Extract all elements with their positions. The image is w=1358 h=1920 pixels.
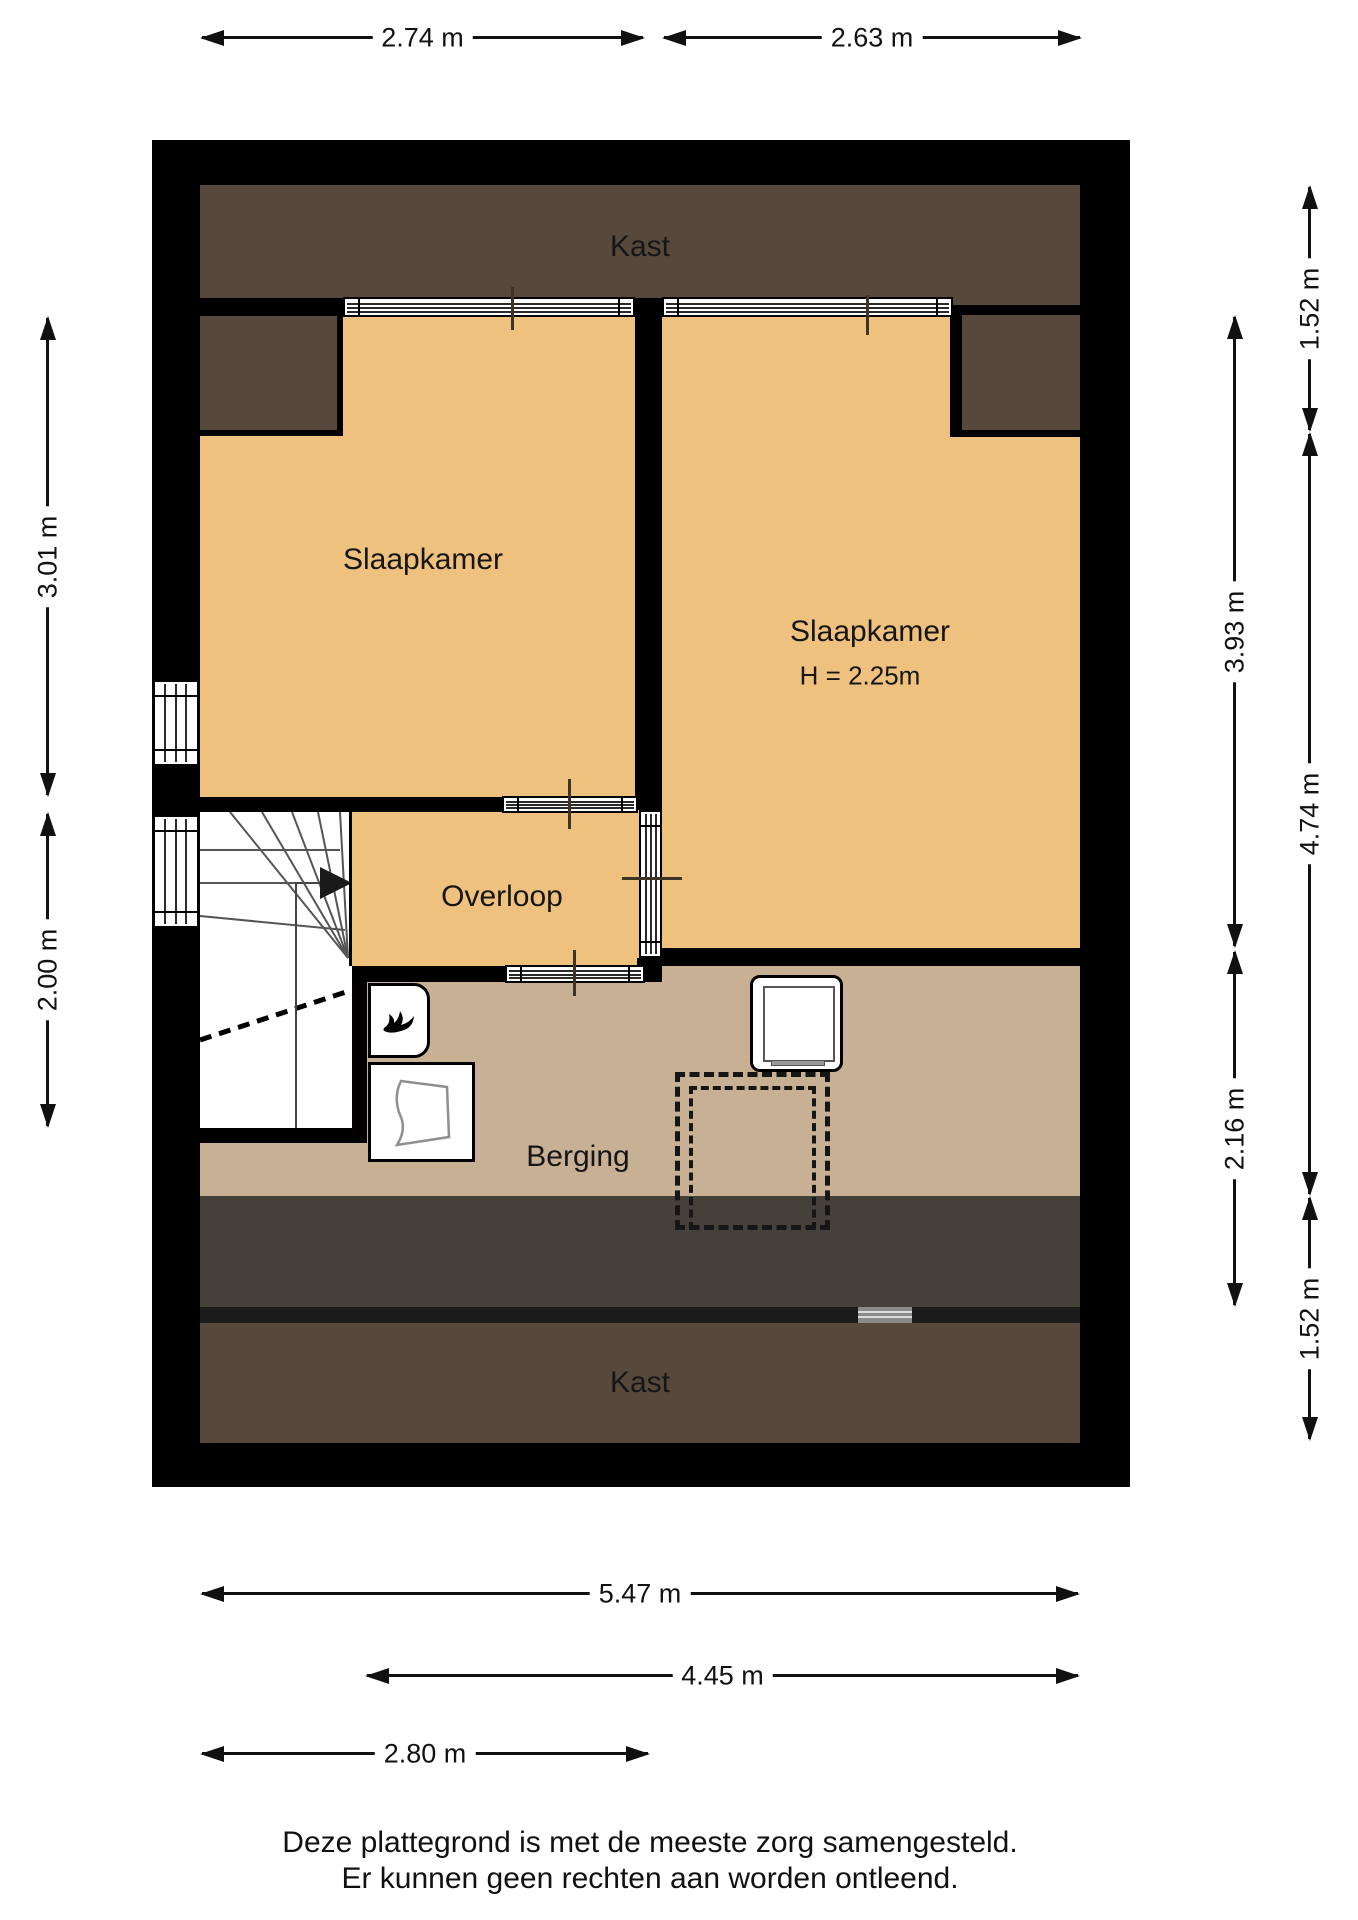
window-tick-right [866,295,869,335]
hatch-dashed-outline-inner [689,1086,816,1230]
label-berging: Berging [526,1140,629,1174]
stairs-drawing [200,812,352,1128]
wall-stairs-bottom [152,1128,367,1143]
wall-top-band-left [200,298,343,316]
label-slaapkamer-right-height: H = 2.25m [800,661,921,692]
window-tick-overloop-top [568,779,571,829]
closet-block-right-border-left [950,313,962,437]
window-tick-left [511,287,514,330]
dim-bottom-1: 5.47 m [200,1574,1080,1614]
stairs-edge-line [349,812,352,966]
dim-left-2: 2.00 m [28,812,68,1128]
dim-top-2: 2.63 m [662,18,1082,58]
washing-machine [750,975,843,1072]
washing-machine-inner [763,986,835,1062]
wall-bedroom-left-bottom [200,797,502,812]
dim-bottom-2: 4.45 m [365,1656,1080,1696]
label-kast-bottom: Kast [610,1366,670,1400]
closet-block-left-border-right [337,315,343,435]
dim-right-outer-2: 4.74 m [1290,432,1330,1196]
window-bedroom-right-top [662,297,953,317]
window-bedroom-left-top [343,297,635,317]
closet-block-right [962,313,1080,430]
dim-top-1: 2.74 m [200,18,645,58]
window-tick-berging [573,950,576,996]
window-left-wall-lower [153,815,199,928]
floor-plan-page: Kast Slaapkamer Slaapkamer H = 2.25m Ove… [0,0,1358,1920]
door-tick [622,877,682,880]
closet-block-left [200,315,338,430]
dim-right-outer-1: 1.52 m [1290,185,1330,432]
closet-block-left-border-bottom [200,430,343,436]
dim-left-1: 3.01 m [28,316,68,797]
wall-stairs-right [352,966,367,1143]
wall-top-band-right [953,305,1082,315]
vent-bottom-wall [858,1307,912,1323]
stairs-arrow-icon [320,867,352,899]
ventilation-unit [368,1062,475,1162]
window-left-wall-upper [153,680,199,766]
door-overloop-bedroom [639,810,662,958]
label-overloop: Overloop [441,880,563,914]
stairs [200,812,352,1128]
footer-disclaimer-line1: Deze plattegrond is met de meeste zorg s… [0,1826,1300,1860]
dim-right-outer-3: 1.52 m [1290,1196,1330,1441]
label-slaapkamer-left: Slaapkamer [343,543,503,577]
footer-disclaimer-line2: Er kunnen geen rechten aan worden ontlee… [0,1862,1300,1896]
ventilation-fan-shape [371,1065,472,1159]
wall-overloop-bottom [352,966,505,982]
washing-machine-base [771,1060,825,1066]
boiler-unit [368,983,430,1058]
dim-right-inner-2: 2.16 m [1215,950,1255,1307]
closet-block-right-border-bottom [950,430,1080,437]
wall-bedroom-right-bottom [662,948,1080,966]
label-slaapkamer-right: Slaapkamer [790,615,950,649]
label-kast-top: Kast [610,230,670,264]
dim-right-inner-1: 3.93 m [1215,315,1255,948]
wall-bedroom-separator [635,298,662,810]
dim-bottom-3: 2.80 m [200,1734,650,1774]
flame-icon [379,1006,419,1038]
attic-strip [200,1196,1080,1307]
wall-kast-bottom [200,1307,1080,1323]
